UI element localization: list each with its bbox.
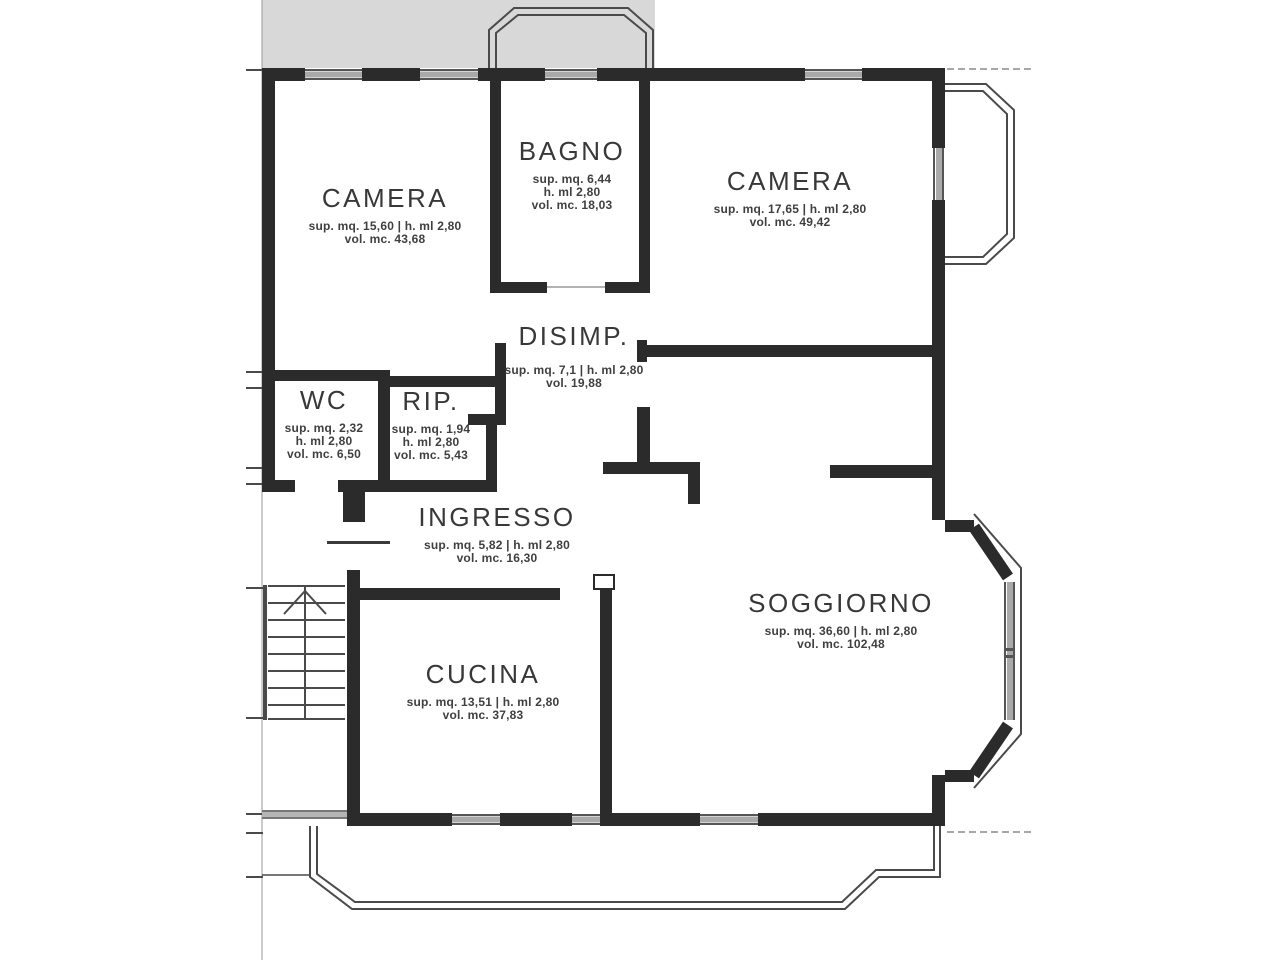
- room-name: WC: [285, 387, 364, 413]
- room-label-cucina: CUCINA sup. mq. 13,51 | h. ml 2,80 vol. …: [407, 661, 560, 722]
- room-name: RIP.: [392, 388, 471, 414]
- room-name: CAMERA: [309, 185, 462, 211]
- room-info-line: vol. mc. 5,43: [392, 449, 471, 462]
- room-name: CUCINA: [407, 661, 560, 687]
- room-info-line: vol. mc. 49,42: [714, 216, 867, 229]
- room-info-line: vol. mc. 16,30: [418, 552, 575, 565]
- room-info-line: vol. 19,88: [504, 377, 643, 390]
- room-label-disimpegno: DISIMP. sup. mq. 7,1 | h. ml 2,80 vol. 1…: [504, 323, 643, 390]
- room-name: INGRESSO: [418, 504, 575, 530]
- balcony-outline: [262, 826, 940, 909]
- room-label-camera-1: CAMERA sup. mq. 15,60 | h. ml 2,80 vol. …: [309, 185, 462, 246]
- bay-window-soggiorno: [945, 514, 1021, 788]
- room-label-soggiorno: SOGGIORNO sup. mq. 36,60 | h. ml 2,80 vo…: [748, 590, 934, 651]
- room-info-line: vol. mc. 43,68: [309, 233, 462, 246]
- floor-plan-drawing: [0, 0, 1280, 960]
- room-name: BAGNO: [519, 138, 625, 164]
- bay-window-top-right: [945, 84, 1014, 264]
- terrace: [262, 0, 655, 68]
- room-label-bagno: BAGNO sup. mq. 6,44 h. ml 2,80 vol. mc. …: [519, 138, 625, 212]
- room-info-line: vol. mc. 102,48: [748, 638, 934, 651]
- room-info-line: vol. mc. 37,83: [407, 709, 560, 722]
- room-label-wc: WC sup. mq. 2,32 h. ml 2,80 vol. mc. 6,5…: [285, 387, 364, 461]
- floor-plan-canvas: CAMERA sup. mq. 15,60 | h. ml 2,80 vol. …: [0, 0, 1280, 960]
- stairs: [263, 585, 345, 720]
- room-name: CAMERA: [714, 168, 867, 194]
- entrance-door: [327, 541, 390, 544]
- kitchen-door-jamb: [594, 575, 614, 589]
- room-label-ripostiglio: RIP. sup. mq. 1,94 h. ml 2,80 vol. mc. 5…: [392, 388, 471, 462]
- room-info-line: vol. mc. 18,03: [519, 199, 625, 212]
- room-name: SOGGIORNO: [748, 590, 934, 616]
- room-label-ingresso: INGRESSO sup. mq. 5,82 | h. ml 2,80 vol.…: [418, 504, 575, 565]
- dimension-ticks: [246, 70, 263, 877]
- room-label-camera-2: CAMERA sup. mq. 17,65 | h. ml 2,80 vol. …: [714, 168, 867, 229]
- room-info-line: vol. mc. 6,50: [285, 448, 364, 461]
- room-name: DISIMP.: [504, 323, 643, 349]
